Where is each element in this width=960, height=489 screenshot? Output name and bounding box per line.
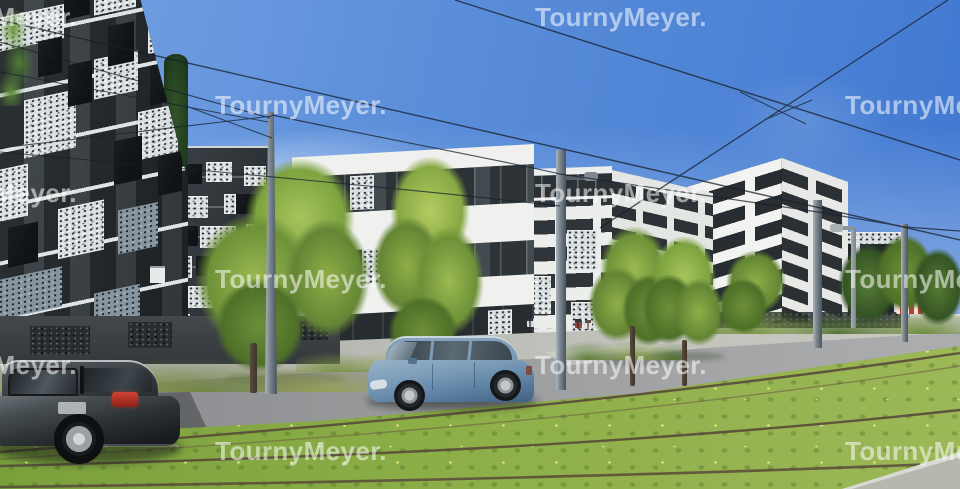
car-door-seam [432,364,433,390]
street-lamp-post [851,228,856,328]
catenary-pole [556,150,566,390]
window [64,0,90,20]
street-tree [718,250,794,340]
lace-panel [0,266,62,320]
lamp-head [584,172,598,181]
car-taillight [112,392,138,407]
pine-trees [838,234,960,334]
tree-canopy [718,278,768,334]
car-mirror [408,358,417,364]
street-tree [185,158,370,398]
tree-canopy [674,278,724,346]
car-rear-window [8,368,78,396]
car-license-plate [58,402,86,414]
street-tree [642,236,726,388]
window [68,60,92,107]
car-wheel [490,370,521,401]
street-scene-photo: TournyMeyer.TournyMeyer.TournyMeyer.Tour… [0,0,960,489]
lace-panel [0,164,28,222]
tree-canopy [912,248,960,326]
window [38,36,62,77]
car-side-window [84,368,152,392]
facade-sign [150,266,165,283]
car-dark-wagon [0,356,188,474]
tree-trunk [630,326,635,386]
lace-panel [58,199,104,259]
balcony-plant [0,10,36,106]
car-blue-mpv [366,334,538,414]
car-door-seam [474,362,475,388]
lace-panel [118,202,158,255]
window [108,21,134,67]
lace-panel [94,0,136,16]
window [114,135,142,185]
tree-trunk [250,343,257,393]
street-lamp-head [830,224,843,232]
car-wheel [394,380,425,411]
catenary-pole [813,200,822,348]
tree-trunk [682,340,687,386]
car-wheel [54,414,104,464]
tree-canopy [215,278,305,373]
catenary-pole [901,224,908,342]
car-bumper-highlight [92,444,178,447]
window [158,151,182,196]
window [8,221,38,267]
car-taillight [526,366,532,375]
